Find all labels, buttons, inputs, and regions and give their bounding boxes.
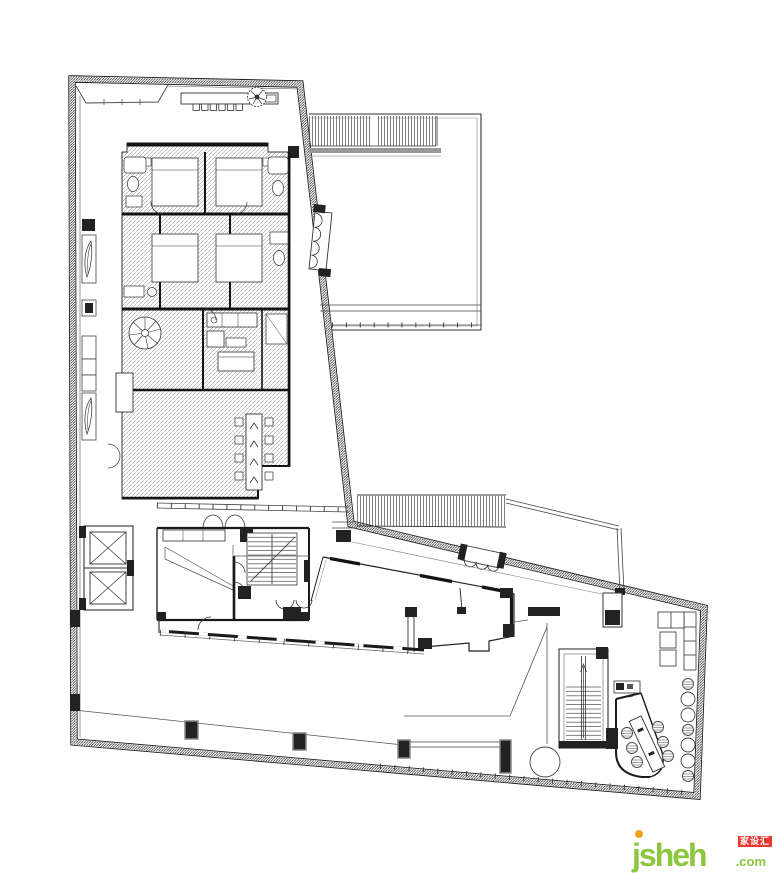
column [398,740,410,758]
south-glass-wall [159,617,424,654]
bar-stools [681,679,695,782]
watermark-orange-dot-icon [635,830,643,838]
ramp-lines [165,545,233,590]
watermark-logo[interactable]: jsheh 家设汇 .com [632,829,772,867]
residential-block [116,143,290,499]
wing-stair [559,647,608,748]
entrance-lobby [157,515,312,620]
double-door-arc [108,444,120,468]
canopy-edge [157,503,349,512]
watermark-badge: 家设汇 [738,836,772,847]
round-table [530,747,560,777]
lobby-stair [247,533,297,585]
floor-plan-page: jsheh 家设汇 .com [0,0,780,873]
sofa-group [658,612,696,670]
wall-column [70,610,80,627]
elevator-car [90,532,126,564]
meeting-room [606,681,674,777]
bed [144,158,198,206]
left-planters [82,235,120,468]
column [500,740,511,773]
floor-plan-drawing [0,0,780,873]
wall-column [70,694,80,711]
roof-terrace [309,114,481,330]
bay-window [116,373,133,412]
elevators [79,526,134,610]
plant-icon [248,88,267,107]
sofa [218,352,254,371]
coffee-table [226,338,246,347]
bed [152,234,198,282]
seat-row [193,104,242,110]
bed [216,158,270,206]
entrance-door-arcs [203,515,245,528]
elevator-car [90,572,126,604]
watermark-tld-text: .com [736,854,766,869]
spiral-stair [129,317,161,349]
bed [216,234,262,282]
top-desk-group [181,88,278,111]
column [185,721,198,739]
wall-segment [528,607,560,616]
folding-door-upper [306,204,337,277]
wall-column [82,219,95,231]
column [293,733,306,750]
watermark-brand-text: jsheh [632,839,706,871]
